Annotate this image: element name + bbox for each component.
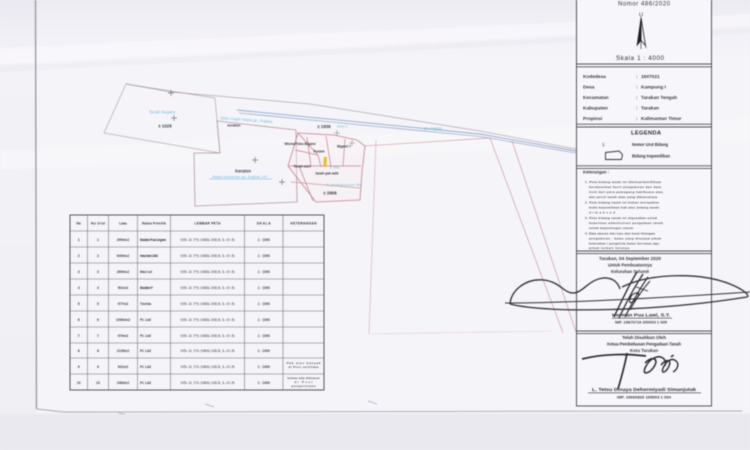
svg-text:berdasarkan hasil pengukuran d: berdasarkan hasil pengukuran dan data [589, 185, 661, 189]
svg-text:977m2: 977m2 [118, 302, 129, 306]
svg-text:05-3.70.086.063.1-0-5: 05-3.70.086.063.1-0-5 [181, 286, 235, 290]
svg-text:± 1029: ± 1029 [158, 124, 172, 129]
svg-text:1: 1 [78, 238, 80, 242]
svg-text:1 : 1000: 1 : 1000 [257, 302, 270, 306]
svg-text:Kodedesa: Kodedesa [583, 74, 606, 80]
svg-text:Propinsi: Propinsi [583, 116, 602, 122]
svg-text:1 : 1000: 1 : 1000 [257, 349, 270, 353]
svg-text:Skala 1 : 4000: Skala 1 : 4000 [616, 55, 665, 62]
svg-text:3. Peta bidang tanah ini digu: 3. Peta bidang tanah ini digunakan untuk [585, 216, 657, 220]
svg-text:Kelurahan Selumit: Kelurahan Selumit [611, 269, 650, 274]
svg-text:di Post sertifikat: di Post sertifikat [289, 365, 319, 369]
svg-text:Keterangan :: Keterangan : [583, 170, 609, 175]
svg-text:6: 6 [78, 318, 80, 322]
svg-text:jl. baru: jl. baru [329, 166, 340, 170]
svg-text:05-3.70.086.063.1-0-5: 05-3.70.086.063.1-0-5 [181, 270, 235, 274]
svg-text:05-3.70.086.063.1-0-5: 05-3.70.086.063.1-0-5 [181, 302, 235, 306]
svg-text:Nomor Urut Bidang: Nomor Urut Bidang [632, 142, 668, 147]
svg-text:Kabupaten: Kabupaten [583, 106, 608, 112]
svg-text:NIP. 19870719 200003 1 005: NIP. 19870719 200003 1 005 [615, 320, 668, 325]
svg-text:Kalimantan Timur: Kalimantan Timur [641, 116, 682, 122]
svg-text:blok C: blok C [337, 125, 348, 129]
svg-text:L. Tetsu Dinaya Dehermiyadi Si: L. Tetsu Dinaya Dehermiyadi Simanjutak [592, 387, 697, 392]
svg-text:Hasmiah UAS: Hasmiah UAS [140, 254, 159, 258]
svg-text:keraton: keraton [228, 124, 241, 128]
svg-text:Kampung I: Kampung I [641, 85, 666, 91]
svg-text:2139m2: 2139m2 [117, 349, 130, 353]
svg-text:Tiorida: Tiorida [140, 302, 151, 306]
svg-text:bukti kepemilikan hak atas bid: bukti kepemilikan hak atas bidang tanah [589, 206, 659, 210]
svg-text:Tarakan Tengah: Tarakan Tengah [641, 95, 677, 101]
svg-text:Wisma/Toko Bigami: Wisma/Toko Bigami [284, 142, 315, 146]
svg-text:± 2906: ± 2906 [323, 191, 337, 196]
svg-text:pengelolaan: pengelolaan [292, 384, 316, 388]
svg-text:1 : 1000: 1 : 1000 [257, 286, 270, 290]
svg-text:2: 2 [78, 254, 80, 258]
svg-text:4: 4 [78, 286, 80, 290]
svg-text:3: 3 [78, 270, 80, 274]
svg-text:2954m2: 2954m2 [117, 238, 130, 242]
svg-text:1 : 1000: 1 : 1000 [257, 270, 270, 274]
svg-text:untuk kepentingan umum: untuk kepentingan umum [589, 226, 633, 230]
svg-text:1 : 1000: 1 : 1000 [257, 334, 270, 338]
svg-text:pengukuran - batas yang ditunj: pengukuran - batas yang ditunjuk pihak [589, 237, 661, 241]
svg-text:Bastian Pua Lingara: Bastian Pua Lingara [140, 238, 166, 242]
svg-text:5: 5 [78, 302, 80, 306]
svg-text:SKALA: SKALA [257, 222, 272, 226]
svg-text:2. Peta bidang tanah ini buka: 2. Peta bidang tanah ini bukan merupakan [585, 201, 659, 205]
svg-text:Desa: Desa [583, 85, 595, 91]
svg-text:10: 10 [96, 381, 100, 385]
svg-text:2894m2: 2894m2 [117, 270, 130, 274]
svg-text:05-3.70.086.063.1-0-5: 05-3.70.086.063.1-0-5 [181, 238, 235, 242]
svg-text:1: 1 [97, 238, 99, 242]
svg-text:979m2: 979m2 [118, 334, 129, 338]
svg-text:1 : 1000: 1 : 1000 [257, 318, 270, 322]
svg-text:1 : 1000: 1 : 1000 [257, 254, 270, 258]
svg-text:Keraton: Keraton [235, 169, 251, 174]
svg-text:fisik dari para pemegang hak/k: fisik dari para pemegang hak/kuasa atas [589, 190, 663, 194]
svg-text:9: 9 [78, 365, 80, 369]
svg-text:10: 10 [77, 381, 81, 385]
svg-text:2: 2 [97, 254, 99, 258]
svg-text:Kota Tarakan: Kota Tarakan [630, 348, 658, 353]
svg-text:05-3.70.086.063.1-0-5: 05-3.70.086.063.1-0-5 [181, 365, 235, 369]
svg-text:Pt. Lidi: Pt. Lidi [140, 381, 151, 385]
svg-text:1. Peta bidang tanah ini dike: 1. Peta bidang tanah ini dikeluarkan/dib… [585, 180, 661, 184]
svg-text:941m2: 941m2 [118, 365, 129, 369]
svg-text:KETERANGAN: KETERANGAN [291, 222, 318, 226]
svg-text:Kecamatan: Kecamatan [583, 95, 609, 101]
svg-text:tanah pak adik: tanah pak adik [316, 172, 339, 176]
svg-text:Pt. Lidi: Pt. Lidi [140, 349, 151, 353]
svg-text:3: 3 [97, 270, 99, 274]
svg-text:501m2: 501m2 [118, 286, 129, 290]
svg-text:Pt. Lidi: Pt. Lidi [140, 318, 151, 322]
svg-text:s: s [645, 45, 647, 49]
svg-text:No Urut: No Urut [91, 222, 106, 226]
svg-text:Nomor 486/2020: Nomor 486/2020 [618, 2, 671, 8]
svg-text:7: 7 [78, 334, 80, 338]
svg-text:4: 4 [97, 286, 99, 290]
svg-text:Tanah Negara: Tanah Negara [149, 110, 176, 115]
svg-text:Nama Pemilik: Nama Pemilik [142, 222, 166, 226]
svg-text:gn. lingkas: gn. lingkas [424, 127, 442, 131]
svg-text:05-3.70.086.063.1-0-5: 05-3.70.086.063.1-0-5 [181, 254, 235, 258]
svg-text:Untuk Pembuatannya: Untuk Pembuatannya [608, 263, 653, 268]
svg-text:9: 9 [97, 365, 99, 369]
svg-text:2484m2: 2484m2 [117, 381, 130, 385]
svg-text:1607021: 1607021 [641, 74, 660, 80]
svg-text:LEGENDA: LEGENDA [631, 131, 662, 137]
svg-text:pihak terkait lainnya: pihak terkait lainnya [589, 246, 629, 250]
svg-text:8: 8 [97, 349, 99, 353]
svg-text:Tanah aset: Tanah aset [294, 165, 312, 169]
svg-text:Luas: Luas [119, 222, 127, 226]
svg-text:8: 8 [78, 349, 80, 353]
svg-text:Ketua Pembebasan Pengadaan Tan: Ketua Pembebasan Pengadaan Tanah [607, 342, 681, 347]
svg-text:LEMBAR PETA: LEMBAR PETA [195, 222, 222, 226]
svg-text:± 1936: ± 1936 [317, 124, 331, 129]
svg-text:4. Data ukuran dan luas dari: 4. Data ukuran dan luas dari hasil hitun… [585, 232, 655, 236]
svg-text:1 : 1000: 1 : 1000 [257, 238, 270, 242]
svg-text:Tarakan: Tarakan [641, 106, 659, 112]
svg-text:1 : 1000: 1 : 1000 [257, 381, 270, 385]
svg-text:Bastian F: Bastian F [140, 286, 153, 290]
svg-text:05-3.70.086.063.1-0-5: 05-3.70.086.063.1-0-5 [181, 349, 235, 353]
svg-text:Telah Disahkan Oleh: Telah Disahkan Oleh [622, 335, 666, 340]
svg-text:NIP. 19660826 199003 1 004: NIP. 19660826 199003 1 004 [617, 395, 672, 400]
svg-text:Jl. pembangunan dlm: Jl. pembangunan dlm [326, 183, 362, 187]
svg-text:1: 1 [602, 142, 605, 148]
svg-text:6: 6 [97, 318, 99, 322]
svg-text:dimaksud: dimaksud [589, 211, 615, 215]
svg-text:Pt. Lidi: Pt. Lidi [140, 365, 151, 369]
svg-text:1 : 1000: 1 : 1000 [257, 365, 270, 369]
svg-text:5: 5 [97, 302, 99, 306]
svg-text:05-3.70.086.063.1-0-5: 05-3.70.086.063.1-0-5 [181, 381, 235, 385]
svg-text:keperluan administrasi pengada: keperluan administrasi pengadaan tanah [589, 221, 663, 225]
svg-text:Bidang Kepemilikan: Bidang Kepemilikan [632, 154, 670, 159]
svg-text:Tarakan, 04 September 2020: Tarakan, 04 September 2020 [599, 256, 661, 261]
svg-text:No: No [76, 222, 80, 226]
svg-text:10964m2: 10964m2 [116, 318, 130, 322]
svg-text:05-3.70.086.063.1-0-5: 05-3.70.086.063.1-0-5 [181, 334, 235, 338]
svg-text:Herman Pua Lawi, S.T.: Herman Pua Lawi, S.T. [612, 313, 670, 318]
svg-text:Batas kelurahan gn. lingkas 19: Batas kelurahan gn. lingkas 197 [212, 174, 267, 179]
svg-text:Bigami 7: Bigami 7 [337, 145, 351, 149]
svg-text:7: 7 [97, 334, 99, 338]
svg-text:Pt. Lidi: Pt. Lidi [140, 334, 151, 338]
svg-text:kelurahan / pengelola batas be: kelurahan / pengelola batas bersama dgn [589, 242, 659, 246]
svg-text:05-3.70.086.063.1-0-5: 05-3.70.086.063.1-0-5 [181, 318, 235, 322]
svg-text:Mas'ud: Mas'ud [140, 270, 152, 274]
svg-text:6494m2: 6494m2 [117, 254, 130, 258]
svg-text:dan persil tanah atau yang dik: dan persil tanah atau yang dikuasainya [589, 195, 657, 199]
svg-text:Pusara: Pusara [314, 150, 325, 154]
